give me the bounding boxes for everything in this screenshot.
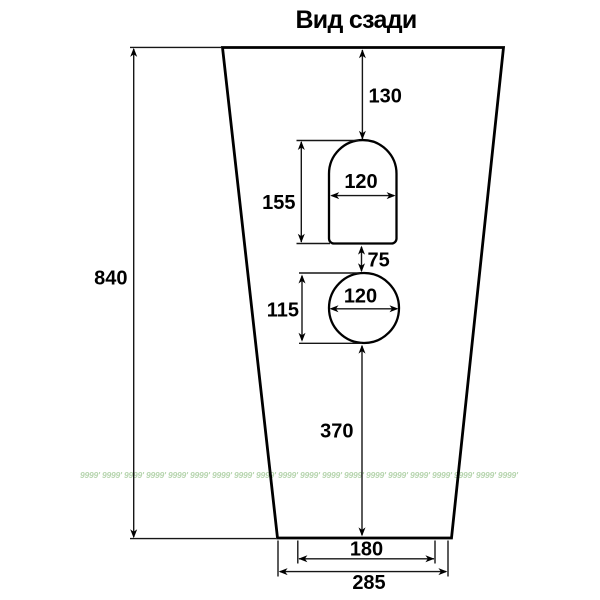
svg-text:155: 155 — [262, 192, 295, 214]
svg-text:120: 120 — [344, 171, 377, 193]
svg-text:130: 130 — [369, 86, 402, 108]
svg-text:285: 285 — [352, 572, 385, 594]
svg-text:9999' 9999' 9999' 9999' 9999': 9999' 9999' 9999' 9999' 9999' 9999' 9999… — [80, 470, 519, 480]
svg-text:Вид сзади: Вид сзади — [295, 6, 416, 34]
svg-text:370: 370 — [320, 421, 353, 443]
svg-text:120: 120 — [344, 286, 377, 308]
svg-text:115: 115 — [267, 300, 299, 322]
svg-text:840: 840 — [94, 268, 127, 290]
svg-text:75: 75 — [368, 250, 390, 272]
svg-text:180: 180 — [350, 539, 383, 561]
